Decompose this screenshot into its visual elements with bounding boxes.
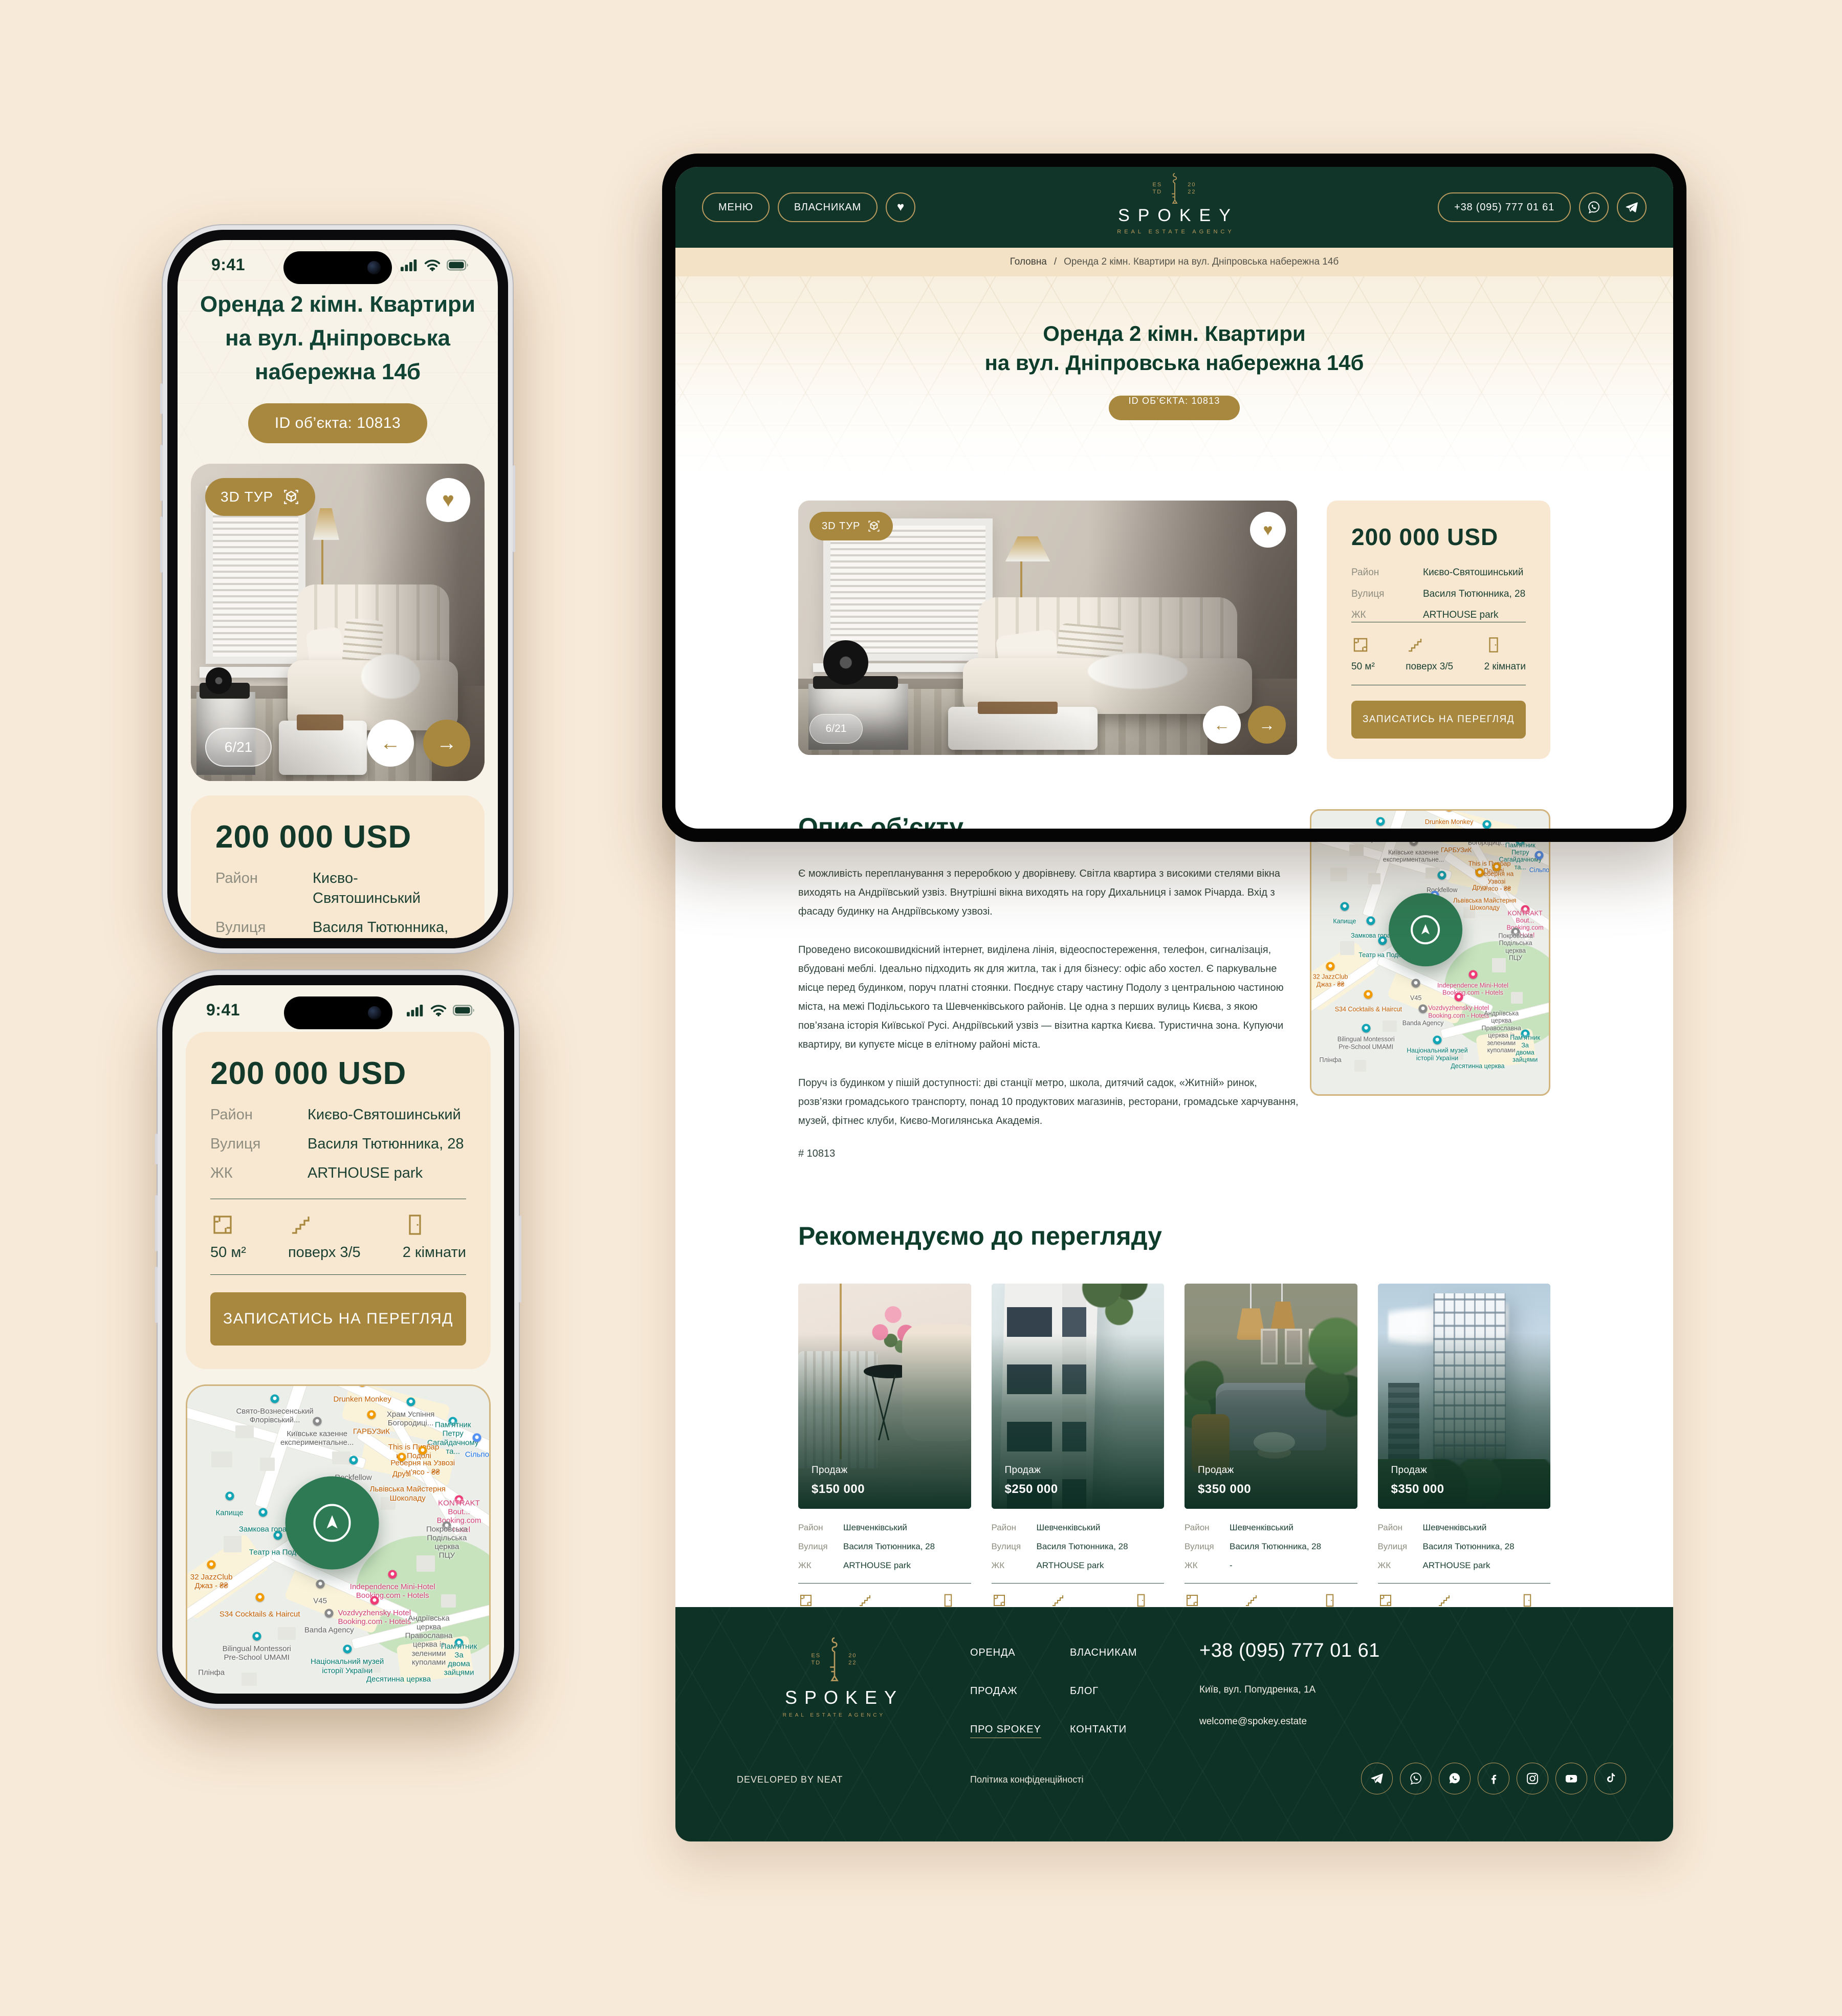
viber-link[interactable] [1400, 1763, 1432, 1794]
presentation-canvas: 9:41 Оренда 2 кімн. Квартири на вул. Дні… [0, 0, 1842, 2016]
area-icon [798, 1593, 814, 1608]
deal-type: Продаж [1391, 1465, 1444, 1476]
location-map[interactable]: Drunken MonkeyСвято-Вознесенський Флорів… [186, 1384, 491, 1694]
header-right-nav: +38 (095) 777 01 61 [1438, 192, 1647, 222]
map-building [1354, 1060, 1366, 1071]
map-pin[interactable] [207, 1560, 216, 1569]
phone-power-button [513, 465, 515, 552]
door-icon [403, 1212, 427, 1237]
developed-by: DEVELOPED BY NEAT [737, 1774, 843, 1785]
card-photo: Продаж$250 000 [992, 1284, 1165, 1509]
recommended-heading: Рекомендуємо до перегляду [798, 1221, 1550, 1251]
map-pin[interactable] [1340, 902, 1349, 911]
divider [210, 1274, 466, 1275]
phone-mute-switch [155, 1134, 158, 1164]
book-viewing-button[interactable]: ЗАПИСАТИСЬ НА ПЕРЕГЛЯД [1351, 701, 1526, 739]
map-label: ГАРБУЗиК [1441, 847, 1472, 854]
attribute-label: Вулиця [798, 1541, 843, 1553]
card-price: $150 000 [812, 1482, 865, 1497]
telegram-button[interactable] [1617, 192, 1647, 222]
description-paragraph: Є можливість перепланування з переробкою… [798, 864, 1300, 921]
attribute-value: Шевченківський [1037, 1522, 1101, 1534]
footer-social-links [1361, 1763, 1626, 1794]
area-icon [1378, 1593, 1393, 1608]
navigation-arrow-icon [1418, 922, 1433, 938]
feature-value: 2 кімнати [403, 1244, 466, 1261]
tiktok-link[interactable] [1594, 1763, 1626, 1794]
recommended-card[interactable]: Продаж$350 000РайонШевченківськийВулицяВ… [1185, 1284, 1357, 1624]
attribute-label: Вулиця [992, 1541, 1037, 1553]
prev-photo-button[interactable]: ← [1203, 706, 1241, 744]
dynamic-island [283, 251, 392, 284]
phone-volume-down-button [155, 1267, 158, 1323]
map-building [441, 1594, 456, 1607]
attribute-label: ЖК [992, 1560, 1037, 1572]
battery-icon [453, 1004, 475, 1016]
divider [210, 1199, 466, 1199]
photo-counter: 6/21 [205, 728, 272, 767]
footer-address: Київ, вул. Попудренка, 1А [1199, 1684, 1380, 1696]
map-pin[interactable] [1326, 962, 1335, 970]
feature-item: 50 м² [1351, 636, 1375, 673]
area-icon [210, 1212, 235, 1237]
map-label: Львівська Майстерня Шоколаду [370, 1485, 446, 1503]
door-icon [1322, 1593, 1337, 1608]
map-building [278, 1627, 296, 1640]
map-label: Independence Mini-Hotel Booking.com - Ho… [1437, 982, 1508, 997]
attribute-label: Район [215, 869, 313, 908]
map-building [242, 1673, 257, 1685]
footer-links-column-1: ОРЕНДАПРОДАЖПРО SPOKEY [970, 1647, 1041, 1738]
owners-button[interactable]: ВЛАСНИКАМ [778, 192, 878, 222]
location-map[interactable]: Drunken MonkeyСвято-Вознесенський Флорів… [1310, 809, 1550, 1096]
map-pin[interactable] [388, 1570, 397, 1579]
price-value: 200 000 USD [210, 1055, 466, 1092]
footer-link-про-spokey[interactable]: ПРО SPOKEY [970, 1724, 1041, 1738]
stairs-icon [1050, 1593, 1065, 1608]
map-label: Сільпо [1529, 866, 1549, 874]
map-pin[interactable] [1364, 990, 1373, 999]
attribute-row: РайонКиєво-Святошинський [215, 869, 460, 908]
attribute-value: Василя Тютюнника, 28 [313, 918, 460, 938]
map-pin[interactable] [1454, 993, 1463, 1002]
menu-button[interactable]: МЕНЮ [702, 192, 770, 222]
property-attributes: РайонШевченківськийВулицяВасиля Тютюнник… [1378, 1522, 1551, 1572]
feature-value: 50 м² [1351, 661, 1375, 673]
map-pin[interactable] [225, 1492, 234, 1501]
phone-mute-switch [160, 383, 163, 414]
gallery-navigation: ← → [367, 720, 470, 767]
attribute-row: ЖКARTHOUSE park [798, 1560, 971, 1572]
map-pin[interactable] [1492, 862, 1501, 871]
recommended-cards: Продаж$150 000РайонШевченківськийВулицяВ… [798, 1284, 1550, 1624]
battery-icon [447, 259, 469, 271]
prev-photo-button[interactable]: ← [367, 720, 414, 767]
map-pin[interactable] [1535, 851, 1544, 860]
map-pin[interactable] [1412, 979, 1420, 987]
divider [1351, 685, 1526, 685]
attribute-row: ЖКARTHOUSE park [1351, 609, 1526, 622]
map-pin[interactable] [370, 1596, 379, 1605]
footer-link-контакти[interactable]: КОНТАКТИ [1070, 1724, 1137, 1736]
divider [798, 1583, 971, 1584]
key-icon [826, 1636, 843, 1683]
recommended-card[interactable]: Продаж$150 000РайонШевченківськийВулицяВ… [798, 1284, 971, 1624]
map-pin[interactable] [1376, 817, 1385, 826]
arrow-right-icon: → [1259, 716, 1275, 734]
map-building [211, 1451, 232, 1468]
phone-mockup-listing-top: 9:41 Оренда 2 кімн. Квартири на вул. Дні… [163, 225, 513, 953]
property-features: 50 м²поверх 3/52 кімнати [1351, 636, 1526, 673]
3d-tour-button[interactable]: 3D ТУР [809, 512, 893, 540]
breadcrumb-current: Оренда 2 кімн. Квартири на вул. Дніпровс… [1064, 256, 1339, 268]
heart-icon: ♥ [897, 200, 904, 214]
attribute-value: Василя Тютюнника, 28 [1423, 588, 1525, 601]
gallery-photo[interactable]: 3D ТУР ♥ 6/21 ← → [191, 464, 485, 781]
description-paragraph: Проведено високошвидкісний інтернет, вид… [798, 941, 1300, 1054]
cube-3d-icon [867, 519, 881, 533]
brand-tagline: REAL ESTATE AGENCY [1110, 229, 1239, 235]
attribute-row: РайонКиєво-Святошинський [1351, 566, 1526, 579]
phone-volume-up-button [155, 1195, 158, 1251]
attribute-row: ЖКARTHOUSE park [210, 1163, 466, 1183]
attribute-row: РайонШевченківський [992, 1522, 1165, 1534]
feature-item: 50 м² [210, 1212, 246, 1261]
youtube-link[interactable] [1555, 1763, 1587, 1794]
map-pin[interactable] [274, 1531, 282, 1540]
marker-ring [1411, 915, 1440, 945]
brand-logo[interactable]: ES TD 20 22 SPOKEY REAL ESTATE AGENCY [1110, 172, 1239, 235]
door-icon [1484, 636, 1503, 654]
map-pin[interactable] [419, 1446, 427, 1455]
3d-tour-button[interactable]: 3D ТУР [205, 478, 315, 516]
divider [1351, 622, 1526, 622]
map-building [260, 1458, 275, 1470]
map-pin[interactable] [1367, 916, 1375, 925]
listing-section: 3D ТУР ♥ 6/21 ← → 200 000 USD РайонКиєво… [798, 501, 1550, 759]
footer-phone[interactable]: +38 (095) 777 01 61 [1199, 1640, 1380, 1662]
map-pin[interactable] [406, 1397, 415, 1406]
map-building [235, 1425, 253, 1438]
deal-type: Продаж [812, 1465, 865, 1476]
card-price: $350 000 [1391, 1482, 1444, 1497]
telegram-icon [1625, 200, 1639, 214]
map-pin[interactable] [1468, 970, 1477, 979]
status-icons [407, 1004, 475, 1016]
estd-left: ES TD [1153, 181, 1163, 196]
breadcrumb-home-link[interactable]: Головна [1010, 256, 1047, 268]
attribute-label: Район [1185, 1522, 1230, 1534]
listing-title: Оренда 2 кімн. Квартири на вул. Дніпровс… [198, 288, 477, 389]
cube-3d-icon [282, 488, 300, 506]
map-label: ГАРБУЗиК [353, 1427, 390, 1436]
area-icon [992, 1593, 1007, 1608]
phone-number-button[interactable]: +38 (095) 777 01 61 [1438, 192, 1571, 222]
description-paragraph: Поруч із будинком у пішій доступності: д… [798, 1074, 1300, 1131]
estd-right: 20 22 [1188, 181, 1196, 196]
gallery-photo[interactable]: 3D ТУР ♥ 6/21 ← → [798, 501, 1297, 755]
cell-signal-icon [401, 259, 418, 271]
desktop-page: МЕНЮ ВЛАСНИКАМ ♥ ES TD 20 22 SPOKEY REAL… [675, 167, 1673, 1841]
attribute-row: ВулицяВасиля Тютюнника, 28 [215, 918, 460, 938]
attribute-value: Шевченківський [1230, 1522, 1293, 1534]
attribute-label: ЖК [1378, 1560, 1423, 1572]
map-label: Капище [1333, 918, 1356, 925]
attribute-value: Києво-Святошинський [308, 1105, 461, 1125]
attribute-label: Вулиця [215, 918, 313, 938]
map-pin[interactable] [1483, 820, 1492, 829]
map-pin[interactable] [397, 1453, 406, 1462]
brand-name: SPOKEY [1110, 206, 1239, 226]
map-pin[interactable] [1476, 868, 1484, 877]
youtube-icon [1564, 1771, 1578, 1786]
map-building [332, 1451, 350, 1464]
attribute-row: ЖКARTHOUSE park [992, 1560, 1165, 1572]
gallery-navigation: ← → [1203, 706, 1286, 744]
stairs-icon [288, 1212, 313, 1237]
card-caption: Продаж$350 000 [1391, 1465, 1444, 1497]
phone1-screen: 9:41 Оренда 2 кімн. Квартири на вул. Дні… [178, 240, 498, 938]
hero-section: Оренда 2 кімн. Квартири на вул. Дніпровс… [675, 276, 1673, 487]
map-label: Banda Agency [304, 1626, 354, 1635]
map-label: 32 JazzClub Джаз - ₴₴ [1313, 973, 1348, 988]
heart-icon: ♥ [1263, 521, 1273, 539]
footer-link-оренда[interactable]: ОРЕНДА [970, 1647, 1041, 1659]
attribute-row: ВулицяВасиля Тютюнника, 28 [210, 1134, 466, 1154]
price-card: 200 000 USD РайонКиєво-СвятошинськийВули… [191, 795, 485, 938]
map-label: Banda Agency [1402, 1020, 1444, 1027]
site-footer: ES TD 20 22 SPOKEY REAL ESTATE AGENCY ОР… [675, 1607, 1673, 1841]
map-label: Капище [216, 1509, 244, 1518]
map-label: Сільпо [465, 1450, 489, 1459]
description-section: Опис об’єкту Є можливість перепланування… [798, 812, 1550, 1160]
attribute-row: ЖК- [1185, 1560, 1357, 1572]
property-attributes: РайонКиєво-СвятошинськийВулицяВасиля Тют… [1351, 566, 1526, 622]
map-pin[interactable] [1433, 1035, 1441, 1044]
wifi-icon [424, 259, 441, 271]
attribute-value: Києво-Святошинський [313, 869, 460, 908]
footer-link-продаж[interactable]: ПРОДАЖ [970, 1685, 1041, 1697]
attribute-label: ЖК [798, 1560, 843, 1572]
privacy-policy-link[interactable]: Політика конфіденційності [970, 1774, 1083, 1785]
attribute-label: Район [992, 1522, 1037, 1534]
map-label: Покровська Подільська церква ПЦУ [1498, 932, 1532, 962]
photo-counter: 6/21 [809, 714, 863, 744]
attribute-value: Шевченківський [1423, 1522, 1487, 1534]
attribute-label: Вулиця [1351, 588, 1423, 601]
recommended-card[interactable]: Продаж$350 000РайонШевченківськийВулицяВ… [1378, 1284, 1551, 1624]
map-pin[interactable] [343, 1645, 352, 1654]
map-building [1426, 868, 1440, 879]
attribute-value: ARTHOUSE park [1037, 1560, 1104, 1572]
favorites-button[interactable]: ♥ [886, 192, 915, 222]
arrow-right-icon: → [436, 732, 457, 755]
arrow-left-icon: ← [1214, 716, 1230, 734]
attribute-value: Василя Тютюнника, 28 [1037, 1541, 1128, 1553]
deal-type: Продаж [1198, 1465, 1251, 1476]
property-attributes: РайонШевченківськийВулицяВасиля Тютюнник… [992, 1522, 1165, 1572]
map-label: Свято-Вознесенський Флорівський... [1348, 829, 1413, 843]
divider [1378, 1583, 1551, 1584]
map-pin[interactable] [258, 1508, 267, 1517]
property-location-marker[interactable] [1389, 893, 1462, 967]
attribute-row: РайонШевченківський [1378, 1522, 1551, 1534]
map-label: Національний музей історії України [1407, 1047, 1467, 1062]
card-caption: Продаж$150 000 [812, 1465, 865, 1497]
whatsapp-icon [1448, 1771, 1462, 1786]
telegram-icon [1370, 1771, 1384, 1786]
viber-icon [1409, 1771, 1423, 1786]
feature-value: поверх 3/5 [288, 1244, 361, 1261]
card-photo: Продаж$350 000 [1378, 1284, 1551, 1509]
map-label: Drunken Monkey [1425, 818, 1474, 826]
status-icons [401, 259, 469, 271]
footer-link-власникам[interactable]: ВЛАСНИКАМ [1070, 1647, 1137, 1659]
map-label: Пам'ятник За двома зайцями [441, 1642, 477, 1677]
object-ref: # 10813 [798, 1148, 1550, 1160]
price-card: 200 000 USD РайонКиєво-СвятошинськийВули… [1327, 501, 1550, 759]
attribute-value: Шевченківський [843, 1522, 907, 1534]
map-building [224, 1536, 242, 1552]
next-photo-button[interactable]: → [1248, 706, 1286, 744]
divider [992, 1583, 1165, 1584]
footer-link-блог[interactable]: БЛОГ [1070, 1685, 1137, 1697]
heart-icon: ♥ [442, 489, 454, 512]
card-price: $350 000 [1198, 1482, 1251, 1497]
status-time: 9:41 [206, 1001, 240, 1020]
map-pin[interactable] [316, 1580, 324, 1589]
map-label: Drunken Monkey [333, 1395, 391, 1403]
attribute-label: ЖК [1185, 1560, 1230, 1572]
brand-tagline: REAL ESTATE AGENCY [778, 1712, 890, 1718]
tiktok-icon [1603, 1771, 1617, 1786]
property-features: 50 м²поверх 3/52 кімнати [210, 1212, 466, 1261]
attribute-label: Район [210, 1105, 308, 1125]
map-pin[interactable] [1438, 871, 1446, 880]
attribute-row: ВулицяВасиля Тютюнника, 28 [992, 1541, 1165, 1553]
map-building [1340, 941, 1354, 956]
header-left-nav: МЕНЮ ВЛАСНИКАМ ♥ [702, 192, 915, 222]
door-icon [1133, 1593, 1149, 1608]
map-pin[interactable] [1362, 1024, 1370, 1033]
map-building [1511, 992, 1523, 1003]
estd-left: ES TD [812, 1652, 821, 1667]
map-pin[interactable] [271, 1394, 279, 1403]
map-pin[interactable] [1409, 837, 1418, 846]
card-photo: Продаж$150 000 [798, 1284, 971, 1509]
arrow-left-icon: ← [380, 732, 401, 755]
map-pin[interactable] [1452, 831, 1461, 840]
viber-button[interactable] [1579, 192, 1609, 222]
property-location-marker[interactable] [286, 1476, 379, 1570]
map-label: Друзі [392, 1470, 411, 1479]
3d-tour-label: 3D ТУР [221, 489, 273, 505]
phone-volume-up-button [160, 445, 163, 501]
map-pin[interactable] [1378, 936, 1387, 945]
stairs-icon [1406, 636, 1424, 654]
stairs-icon [1436, 1593, 1452, 1608]
attribute-value: Василя Тютюнника, 28 [1423, 1541, 1515, 1553]
map-label: Друзі [1472, 883, 1487, 891]
map-label: Плінфа [1320, 1056, 1342, 1064]
feature-item: поверх 3/5 [288, 1212, 361, 1261]
object-id-badge: ID ОБ’ЄКТА: 10813 [1109, 396, 1239, 420]
map-pin[interactable] [473, 1433, 481, 1442]
status-time: 9:41 [211, 255, 245, 274]
attribute-label: Вулиця [210, 1134, 308, 1154]
map-pin[interactable] [252, 1632, 261, 1640]
attribute-row: ВулицяВасиля Тютюнника, 28 [798, 1541, 971, 1553]
feature-value: поверх 3/5 [1406, 661, 1453, 673]
property-attributes: РайонКиєво-СвятошинськийВулицяВасиля Тют… [215, 869, 460, 938]
recommended-card[interactable]: Продаж$250 000РайонШевченківськийВулицяВ… [992, 1284, 1165, 1624]
attribute-value: Києво-Святошинський [1423, 566, 1523, 579]
map-label: Свято-Вознесенський Флорівський... [236, 1406, 313, 1424]
map-label: Київське казенне експериментальне... [1383, 849, 1444, 863]
attribute-value: Василя Тютюнника, 28 [843, 1541, 935, 1553]
area-icon [1185, 1593, 1200, 1608]
next-photo-button[interactable]: → [423, 720, 470, 767]
site-header: МЕНЮ ВЛАСНИКАМ ♥ ES TD 20 22 SPOKEY REAL… [675, 167, 1673, 248]
instagram-link[interactable] [1517, 1763, 1548, 1794]
stairs-icon [857, 1593, 872, 1608]
divider [1185, 1583, 1357, 1584]
attribute-value: ARTHOUSE park [843, 1560, 911, 1572]
facebook-link[interactable] [1478, 1763, 1509, 1794]
map-label: Десятинна церква [1451, 1062, 1504, 1069]
map-pin[interactable] [1419, 1004, 1428, 1013]
map-label: This is Пивбар на Подолі [388, 1442, 439, 1460]
map-label: Bilingual Montessori Pre-School UMAMI [1337, 1036, 1395, 1051]
footer-email[interactable]: welcome@spokey.estate [1199, 1716, 1380, 1727]
attribute-row: РайонКиєво-Святошинський [210, 1105, 466, 1125]
map-pin[interactable] [325, 1609, 334, 1618]
attribute-label: Вулиця [1378, 1541, 1423, 1553]
card-caption: Продаж$250 000 [1005, 1465, 1058, 1497]
stairs-icon [1243, 1593, 1259, 1608]
map-pin[interactable] [367, 1411, 376, 1419]
pattern-background [675, 276, 1673, 487]
attribute-value: ARTHOUSE park [1423, 609, 1498, 622]
description-text: Є можливість перепланування з переробкою… [798, 864, 1300, 1131]
navigation-arrow-icon [322, 1513, 342, 1533]
front-camera [367, 261, 381, 274]
map-pin[interactable] [349, 1456, 358, 1465]
favorite-button[interactable]: ♥ [426, 478, 470, 522]
book-viewing-button[interactable]: ЗАПИСАТИСЬ НА ПЕРЕГЛЯД [210, 1292, 466, 1346]
telegram-link[interactable] [1361, 1763, 1393, 1794]
attribute-label: Вулиця [1185, 1541, 1230, 1553]
map-building [1368, 873, 1380, 884]
attribute-label: ЖК [210, 1163, 308, 1183]
price-value: 200 000 USD [1351, 523, 1526, 551]
price-card: 200 000 USD РайонКиєво-СвятошинськийВули… [186, 1032, 491, 1369]
attribute-label: Район [798, 1522, 843, 1534]
area-icon [1351, 636, 1370, 654]
estd-right: 20 22 [848, 1652, 857, 1667]
favorite-button[interactable]: ♥ [1250, 512, 1286, 548]
map-pin[interactable] [255, 1593, 264, 1601]
map-label: S34 Cocktails & Haircut [1335, 1006, 1402, 1013]
map-pin[interactable] [313, 1417, 321, 1426]
whatsapp-link[interactable] [1439, 1763, 1471, 1794]
footer-logo[interactable]: ES TD 20 22 SPOKEY REAL ESTATE AGENCY [778, 1636, 890, 1718]
feature-item: поверх 3/5 [1406, 636, 1453, 673]
recommended-section: Рекомендуємо до перегляду Продаж$150 000… [798, 1221, 1550, 1624]
attribute-row: РайонШевченківський [1185, 1522, 1357, 1534]
map-label: 32 JazzClub Джаз - ₴₴ [190, 1573, 233, 1591]
phone-volume-down-button [160, 516, 163, 573]
